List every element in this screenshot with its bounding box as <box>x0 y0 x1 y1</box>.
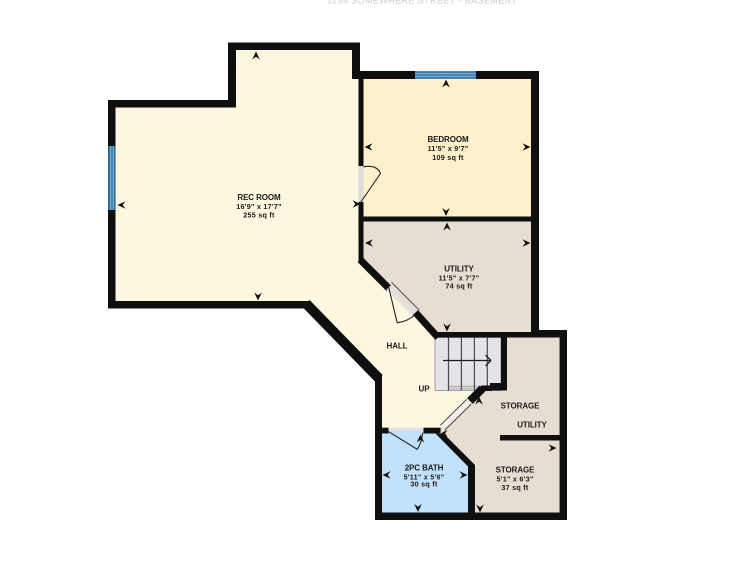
svg-text:REC ROOM: REC ROOM <box>237 193 281 202</box>
svg-text:STORAGE: STORAGE <box>501 402 540 411</box>
svg-text:37 sq ft: 37 sq ft <box>501 483 529 492</box>
svg-text:2PC BATH: 2PC BATH <box>405 464 444 473</box>
svg-text:BEDROOM: BEDROOM <box>427 135 469 144</box>
svg-text:STORAGE: STORAGE <box>496 466 535 475</box>
svg-text:UP: UP <box>419 385 431 394</box>
svg-text:UTILITY: UTILITY <box>517 421 547 430</box>
svg-text:109 sq ft: 109 sq ft <box>432 153 464 162</box>
svg-text:74 sq ft: 74 sq ft <box>445 282 473 291</box>
svg-text:1234 SOMEWHERE STREET - BASEME: 1234 SOMEWHERE STREET - BASEMENT <box>327 0 518 6</box>
svg-text:HALL: HALL <box>387 342 408 351</box>
svg-text:UTILITY: UTILITY <box>444 265 474 274</box>
svg-text:30 sq ft: 30 sq ft <box>410 480 438 489</box>
svg-text:255 sq ft: 255 sq ft <box>243 211 275 220</box>
svg-text:11'5" x 9'7": 11'5" x 9'7" <box>428 144 469 153</box>
